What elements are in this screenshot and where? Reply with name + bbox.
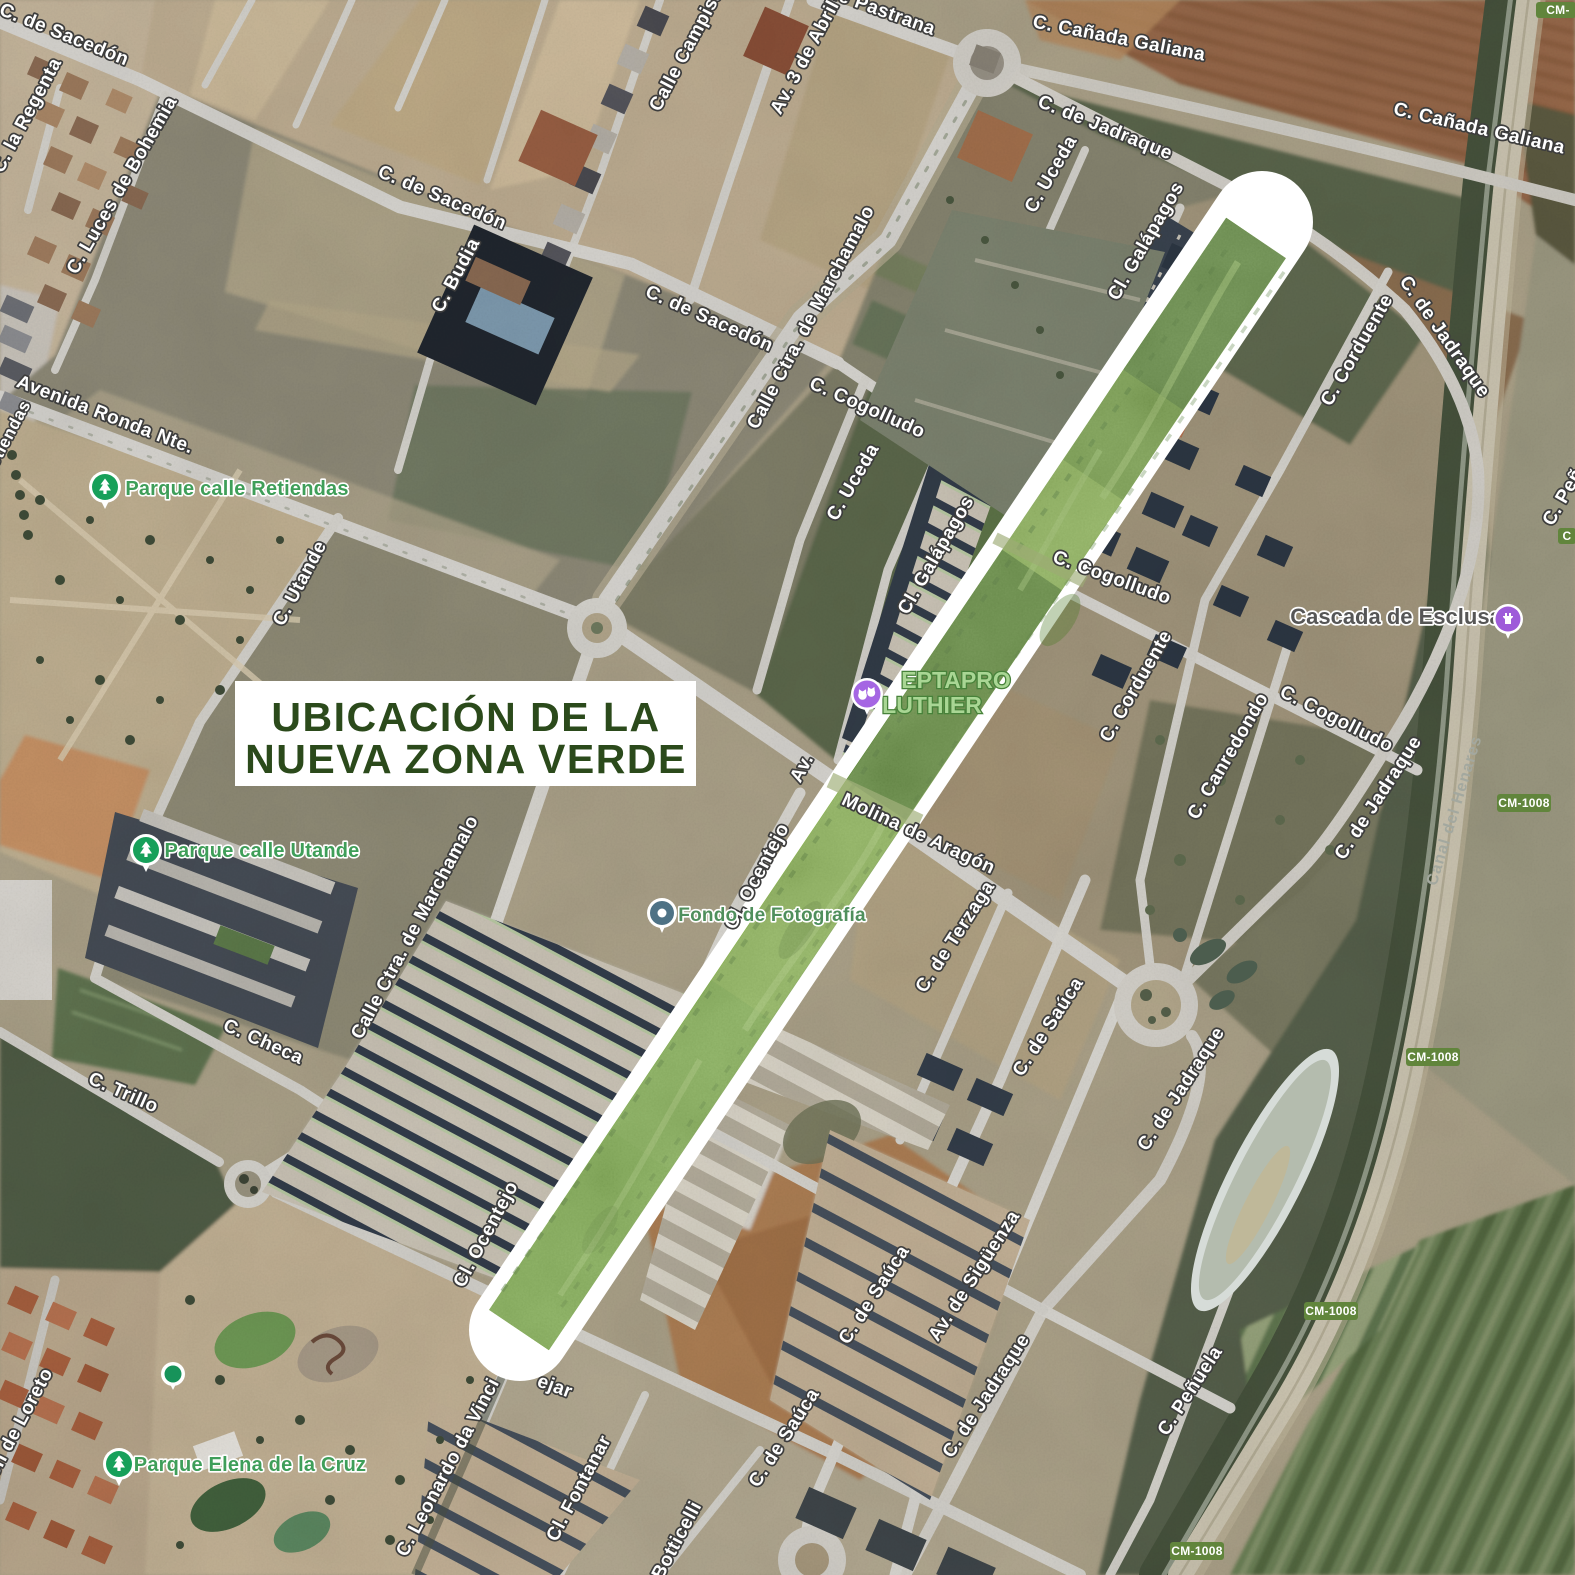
svg-text:CM-1008: CM-1008 — [1498, 796, 1549, 810]
svg-text:CM-1008: CM-1008 — [1305, 1304, 1356, 1318]
svg-text:EPTAPRO: EPTAPRO — [901, 667, 1010, 693]
svg-text:UBICACIÓN DE LA: UBICACIÓN DE LA — [271, 694, 660, 740]
svg-text:CM-: CM- — [1546, 3, 1570, 17]
svg-text:C: C — [1563, 529, 1572, 543]
svg-text:Parque calle Retiendas: Parque calle Retiendas — [125, 478, 348, 500]
svg-text:Parque Elena de la Cruz: Parque Elena de la Cruz — [134, 1454, 366, 1476]
svg-text:CM-1008: CM-1008 — [1407, 1050, 1458, 1064]
svg-text:Parque calle Utande: Parque calle Utande — [165, 840, 360, 862]
svg-text:LUTHIER: LUTHIER — [882, 692, 982, 718]
svg-text:CM-1008: CM-1008 — [1171, 1544, 1222, 1558]
svg-text:Fondo de Fotografía: Fondo de Fotografía — [678, 905, 866, 926]
svg-text:NUEVA ZONA VERDE: NUEVA ZONA VERDE — [245, 736, 687, 782]
svg-text:Cascada de Esclusa: Cascada de Esclusa — [1290, 604, 1502, 629]
